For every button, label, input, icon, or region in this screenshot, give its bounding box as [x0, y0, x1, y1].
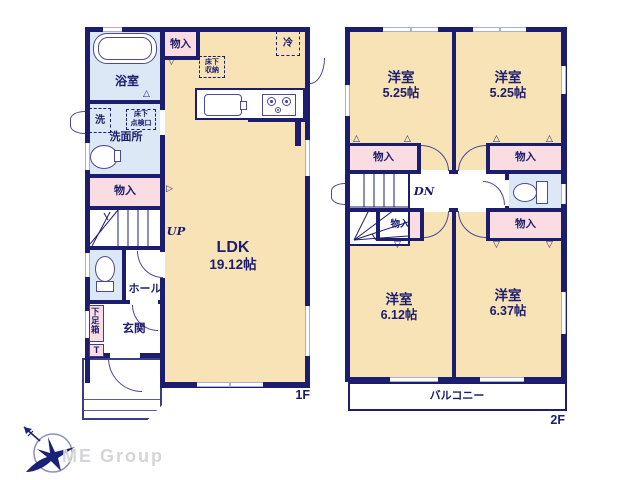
kitchen-back-door-arc [310, 58, 325, 84]
balcony-label: バルコニー [407, 390, 507, 403]
room-tl-name: 洋室 [361, 70, 441, 86]
room-label-hall: ホール [124, 283, 166, 296]
room-tr-name: 洋室 [468, 70, 548, 86]
closet-door-marker: △ [546, 134, 553, 143]
underfloor-hatch-l2: 点検口 [131, 120, 152, 128]
room-label-bath: 浴室 [97, 74, 157, 88]
underfloor-storage-box: 床下 収納 [199, 56, 225, 78]
closet-small-label: 物入 [380, 219, 420, 230]
bathtub-inner [98, 37, 152, 60]
room-bl-size: 6.12帖 [359, 308, 439, 323]
closet-door-marker: △ [493, 134, 500, 143]
kitchen-tap [240, 101, 247, 110]
closet-door-marker: ▷ [166, 184, 173, 193]
wall [160, 27, 165, 382]
wall [452, 212, 456, 377]
wall [345, 377, 567, 382]
toilet-bowl [95, 256, 115, 282]
washer-box: 洗 [89, 108, 111, 133]
stairs-up-label: UP [163, 225, 189, 239]
fridge-label: 冷 [283, 38, 293, 50]
porch-step-line [84, 399, 160, 400]
floor-plan-canvas: 冷 床下 収納 洗 床下 点検口 下足箱 T ▽ ▷ △ 浴室 洗面所 物入 物… [0, 0, 640, 480]
window [561, 292, 566, 334]
washer-label: 洗 [95, 115, 105, 127]
door-opening [130, 300, 158, 304]
floor1-label: 1F [280, 388, 310, 403]
wall [345, 170, 567, 174]
shoebox-t-label: T [89, 345, 104, 356]
underfloor-hatch-box: 床下 点検口 [126, 109, 156, 130]
room-br-label: 洋室 6.37帖 [468, 288, 548, 319]
room-label-entrance: 玄関 [110, 323, 158, 337]
closet-door-marker: ▽ [546, 240, 553, 249]
ldk-area [165, 32, 305, 382]
window [561, 66, 566, 94]
window [85, 253, 90, 277]
room-tr-size: 5.25帖 [468, 86, 548, 101]
kitchen-sink [204, 94, 242, 116]
room-tl-size: 5.25帖 [361, 86, 441, 101]
washroom-ext-door-arc [70, 111, 85, 134]
porch-step-line [84, 410, 160, 411]
closet-door-marker: ▽ [394, 240, 401, 249]
stair-window-arc [331, 183, 345, 205]
wall [85, 206, 165, 210]
toilet2-bowl [513, 183, 537, 202]
closet-door-marker: ▽ [493, 240, 500, 249]
closet-door-marker: ▽ [168, 57, 175, 66]
ldk-size: 19.12帖 [185, 257, 281, 273]
window [305, 306, 310, 356]
toilet-tank [96, 281, 114, 292]
closet-tr-label: 物入 [490, 151, 561, 164]
toilet2-tank [536, 181, 548, 204]
wall [486, 143, 561, 146]
wall [350, 143, 421, 146]
underfloor-storage-l2: 収納 [205, 67, 219, 75]
room-bl-name: 洋室 [359, 292, 439, 308]
closet-mid-label: 物入 [95, 185, 155, 198]
door-opening [160, 110, 165, 135]
window-tick [410, 27, 412, 32]
room-br-size: 6.37帖 [468, 304, 548, 319]
window [345, 85, 350, 116]
wall [345, 27, 350, 382]
wall [295, 118, 301, 146]
closet-tl-label: 物入 [350, 151, 417, 164]
underfloor-storage-l1: 床下 [205, 59, 219, 67]
stove-burner [275, 107, 281, 113]
stairs-up-1f [90, 210, 160, 246]
ldk-label: LDK 19.12帖 [185, 238, 281, 273]
wall [380, 238, 424, 241]
room-br-name: 洋室 [468, 288, 548, 304]
room-tr-label: 洋室 5.25帖 [468, 70, 548, 101]
window [305, 140, 310, 176]
wall [452, 27, 456, 174]
closet-top-label: 物入 [165, 38, 196, 51]
stove-burner [282, 97, 291, 106]
closet-door-marker: △ [353, 134, 360, 143]
wall [85, 100, 165, 104]
window [103, 27, 122, 32]
window-tick [229, 382, 231, 387]
wall [140, 353, 165, 358]
stairs-dn-label: DN [410, 185, 438, 199]
closet-br-label: 物入 [490, 218, 561, 231]
wall [85, 174, 165, 178]
bath-door-marker: △ [143, 89, 150, 98]
window [390, 377, 438, 382]
wash-basin-tap [114, 150, 121, 162]
window [561, 184, 566, 204]
ldk-name: LDK [185, 238, 281, 257]
fridge-box: 冷 [276, 31, 300, 56]
window [480, 377, 524, 382]
shoebox-label: 下足箱 [90, 307, 100, 334]
room-bl-label: 洋室 6.12帖 [359, 292, 439, 323]
me-group-logo-text: ME Group [62, 446, 164, 467]
closet-door-marker: △ [404, 134, 411, 143]
wall [345, 27, 567, 32]
stove-burner [267, 97, 276, 106]
floor2-label: 2F [535, 413, 565, 428]
window-tick [499, 27, 501, 32]
room-label-washroom: 洗面所 [95, 131, 157, 144]
door-opening [505, 180, 509, 206]
underfloor-hatch-l1: 床下 [134, 111, 148, 119]
room-tl-label: 洋室 5.25帖 [361, 70, 441, 101]
